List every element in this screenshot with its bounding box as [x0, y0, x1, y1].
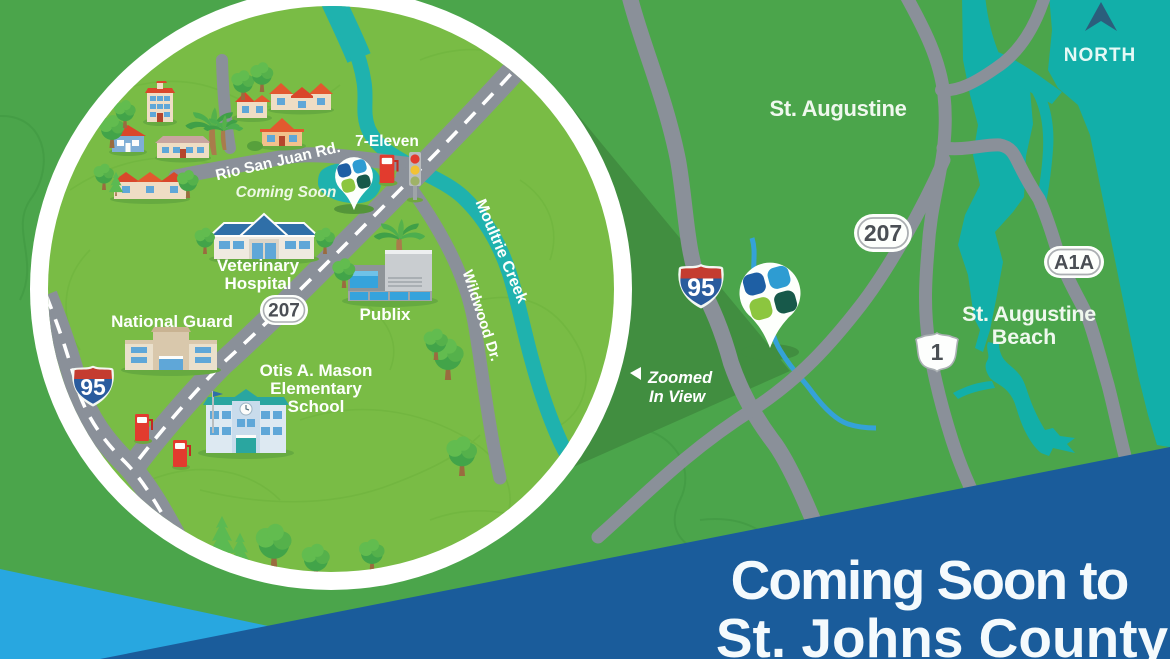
svg-text:Elementary: Elementary: [270, 379, 362, 398]
svg-text:School: School: [288, 397, 345, 416]
svg-text:In View: In View: [649, 388, 706, 406]
svg-text:St. Augustine: St. Augustine: [962, 302, 1096, 326]
svg-text:Coming Soon to: Coming Soon to: [731, 549, 1128, 611]
svg-text:Coming Soon: Coming Soon: [236, 184, 337, 201]
svg-text:7-Eleven: 7-Eleven: [355, 133, 419, 150]
svg-text:NORTH: NORTH: [1064, 45, 1137, 66]
svg-text:Veterinary: Veterinary: [217, 256, 300, 275]
svg-text:Otis A. Mason: Otis A. Mason: [260, 361, 373, 380]
svg-text:National Guard: National Guard: [111, 312, 233, 331]
svg-text:Zoomed: Zoomed: [647, 369, 713, 387]
svg-text:1: 1: [931, 339, 944, 365]
svg-text:Publix: Publix: [359, 305, 411, 324]
svg-text:St. Johns County: St. Johns County: [716, 607, 1169, 659]
svg-text:207: 207: [864, 220, 902, 246]
svg-text:A1A: A1A: [1054, 252, 1094, 274]
svg-text:207: 207: [268, 301, 300, 322]
svg-text:Beach: Beach: [992, 325, 1057, 349]
svg-text:Hospital: Hospital: [224, 274, 291, 293]
svg-text:St. Augustine: St. Augustine: [769, 96, 906, 121]
